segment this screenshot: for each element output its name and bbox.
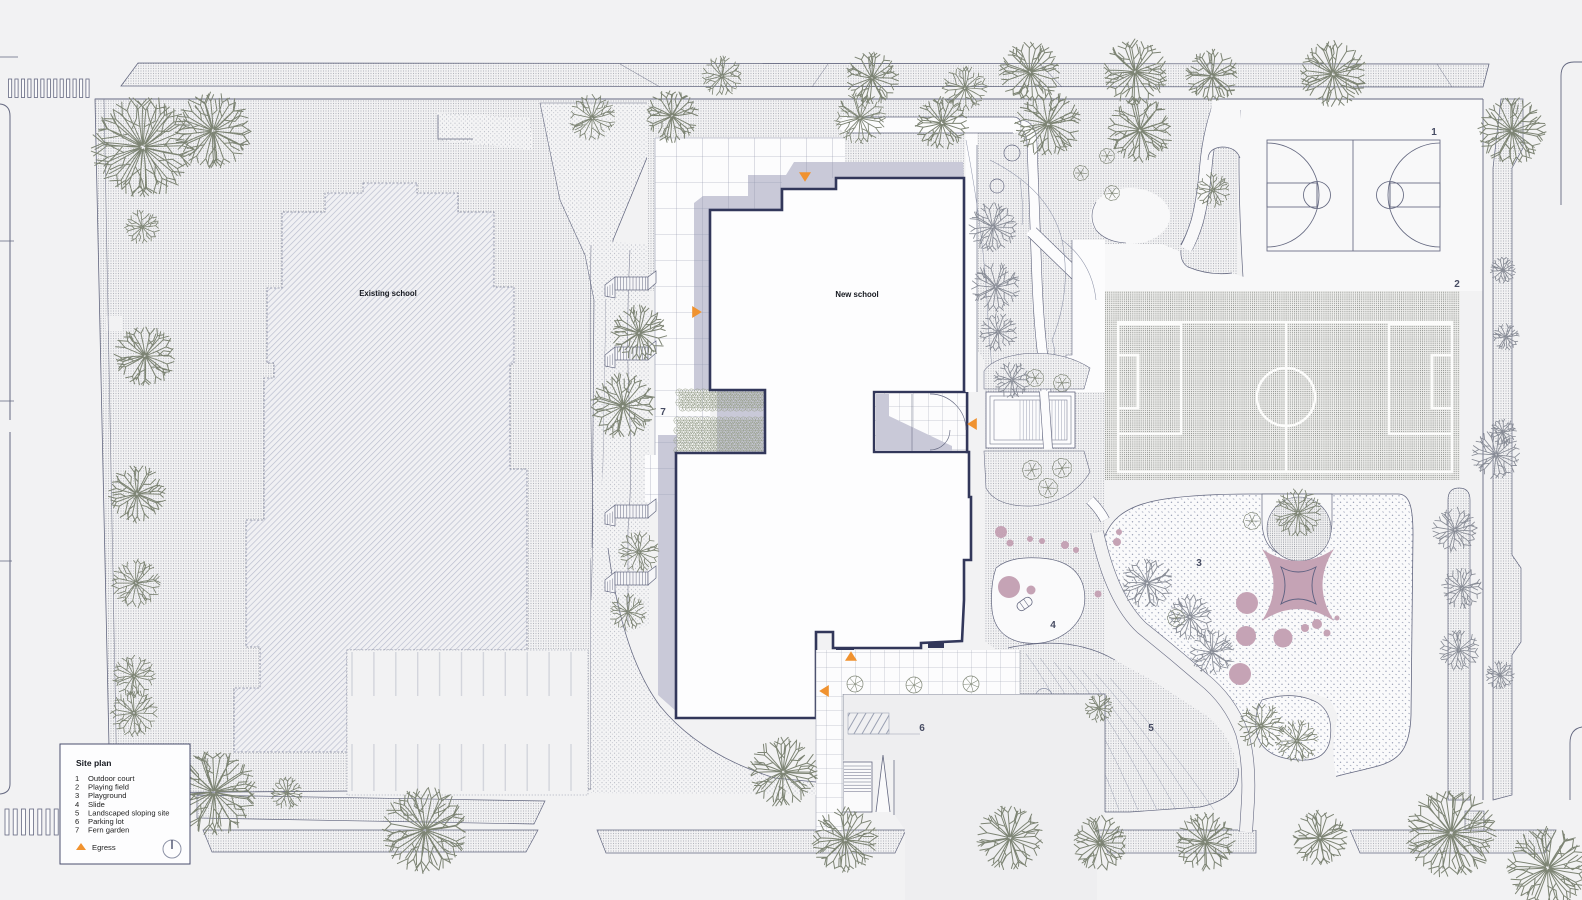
svg-text:Egress: Egress — [92, 843, 116, 852]
svg-text:2: 2 — [1454, 279, 1460, 290]
svg-text:7: 7 — [75, 826, 79, 835]
svg-text:1: 1 — [1431, 127, 1437, 138]
svg-text:5: 5 — [1148, 723, 1154, 734]
svg-text:6: 6 — [919, 723, 925, 734]
svg-text:3: 3 — [1196, 558, 1202, 569]
svg-text:New school: New school — [835, 290, 878, 299]
svg-text:Site plan: Site plan — [76, 758, 111, 768]
svg-text:Existing school: Existing school — [359, 289, 417, 298]
svg-text:4: 4 — [1050, 620, 1056, 631]
svg-text:Fern garden: Fern garden — [88, 826, 129, 835]
svg-text:7: 7 — [660, 407, 666, 418]
